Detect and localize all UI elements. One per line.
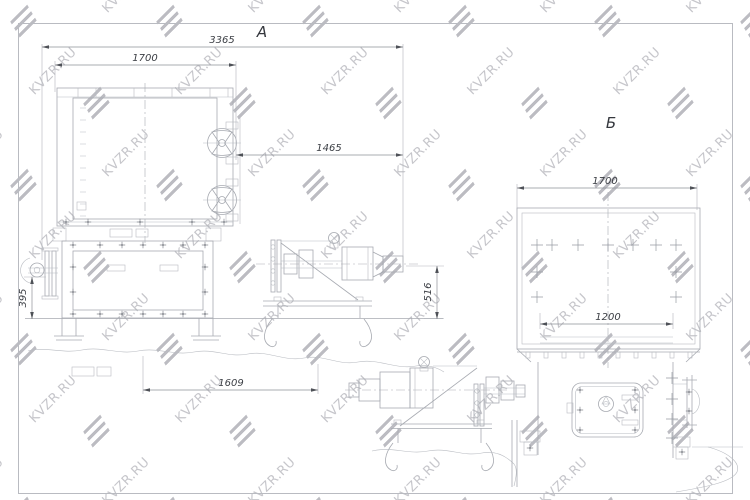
view-a-drive-assembly [256,233,418,347]
drawing-canvas: KVZR.RUKVZR.RUKVZR.RUKVZR.RUKVZR.RUKVZR.… [0,0,750,500]
view-a-label: А [256,23,267,41]
dim-motor-height: 516 [423,282,434,301]
dim-top-width: 1700 [132,53,157,64]
view-a: 3365 1700 1465 1609 395 5 [18,23,444,394]
dim-left-height: 395 [18,288,29,307]
technical-drawing: 3365 1700 1465 1609 395 5 [0,0,750,500]
view-b-foundation [372,375,743,492]
dim-overall-width: 3365 [209,35,234,46]
drawing-frame [19,24,733,494]
eyebolt [419,357,430,368]
dim-top-width: 1700 [592,176,617,187]
view-a-top-view [57,83,241,243]
dim-right-span: 1465 [316,143,341,154]
motor-body [410,368,433,408]
fan-impeller [203,129,241,158]
dimensions-view-b: 1700 1200 [517,176,697,329]
dim-opening-width: 1200 [595,312,620,323]
motor-body [342,247,373,280]
inspection-door [567,383,643,437]
bearing-support [673,375,700,430]
fan-impeller [203,186,241,215]
view-a-foundation [25,319,444,377]
view-b: 1700 1200 Б [345,114,743,492]
dim-base-span: 1609 [218,378,243,389]
view-b-label: Б [606,114,616,132]
view-a-front-view [21,228,221,340]
eyebolt [329,233,340,244]
